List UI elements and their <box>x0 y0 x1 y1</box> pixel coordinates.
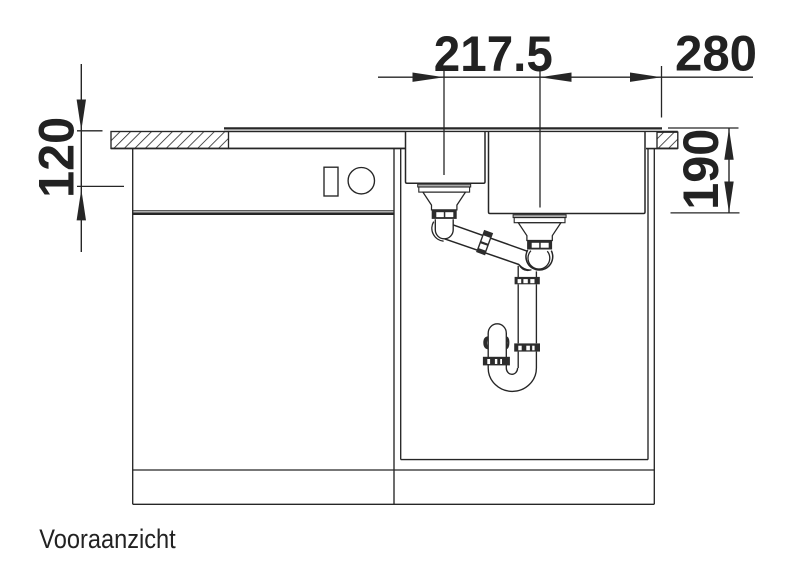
svg-text:120: 120 <box>28 117 85 198</box>
svg-text:280: 280 <box>675 25 757 82</box>
svg-text:190: 190 <box>672 129 729 210</box>
svg-text:217.5: 217.5 <box>434 25 553 82</box>
svg-text:Vooraanzicht: Vooraanzicht <box>39 524 176 554</box>
